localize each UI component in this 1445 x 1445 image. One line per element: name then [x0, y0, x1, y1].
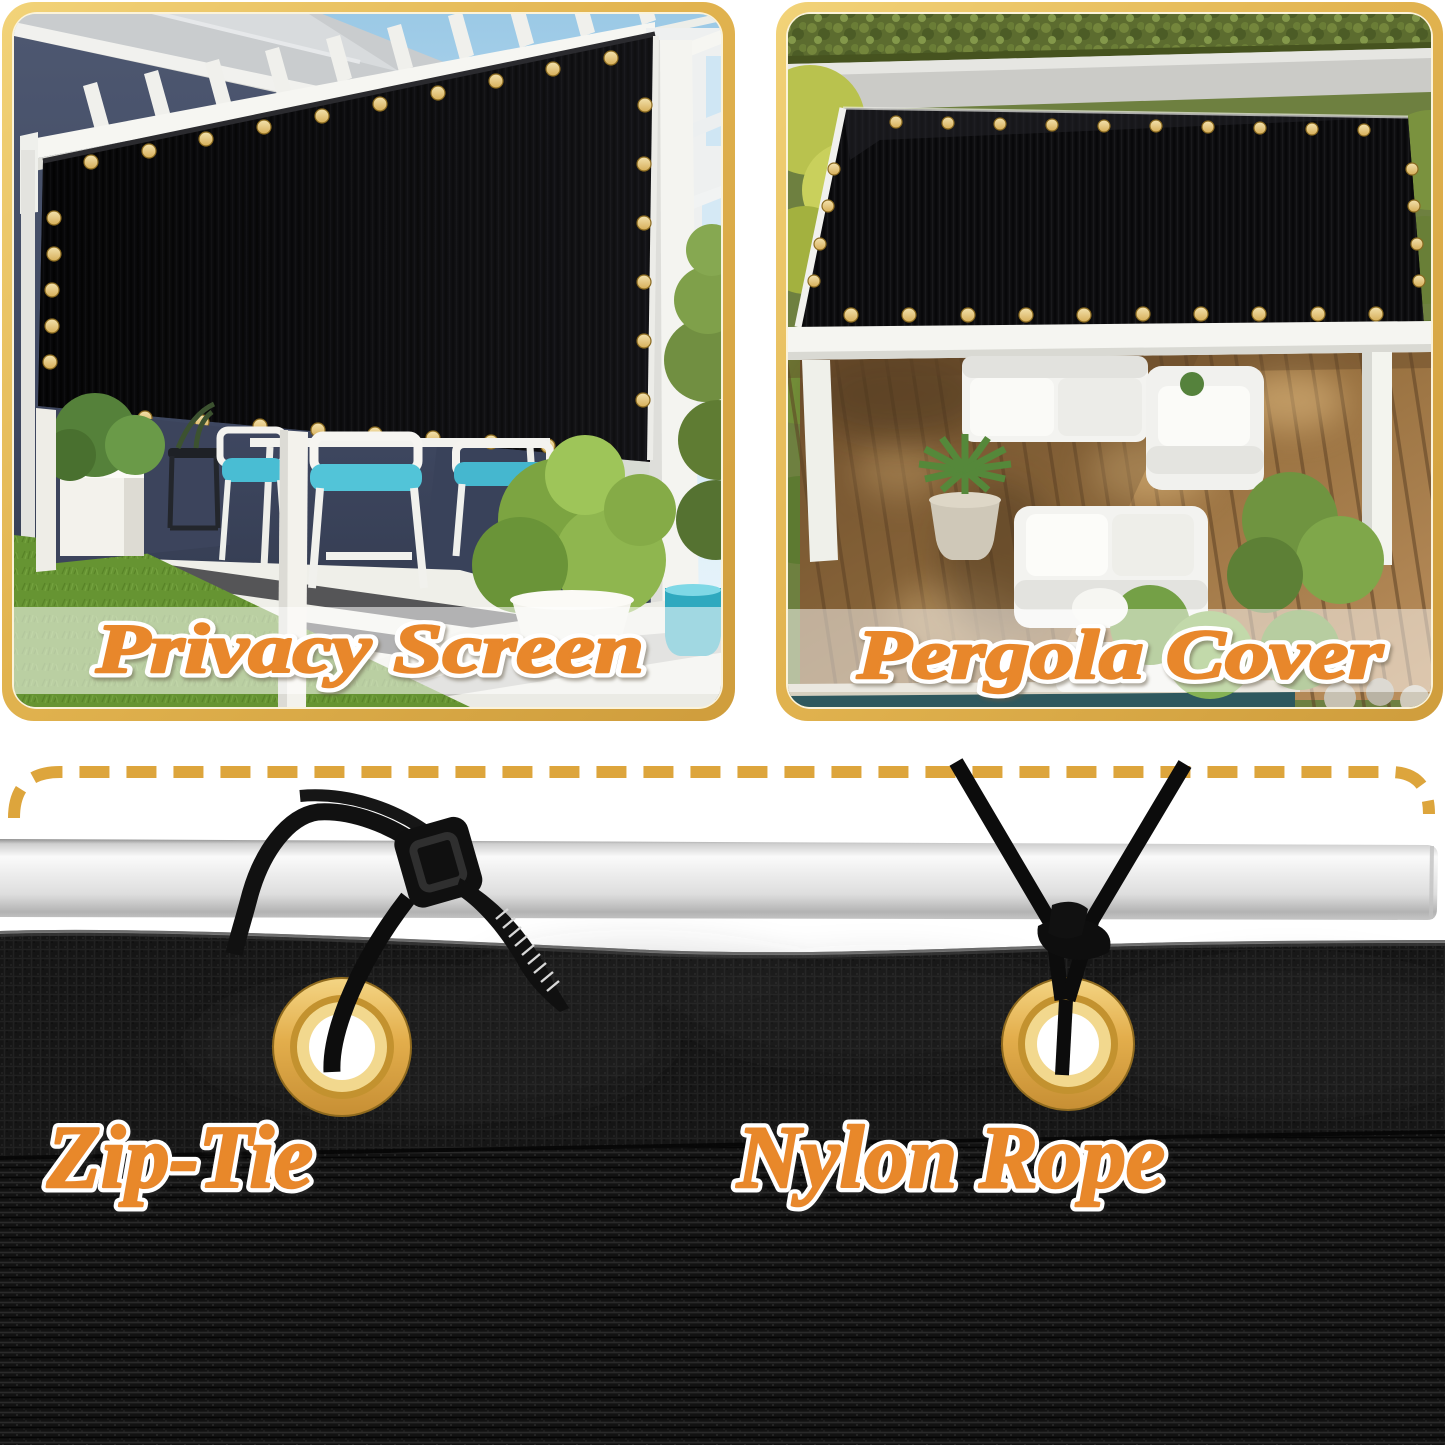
- svg-text:Zip-Tie: Zip-Tie: [46, 1109, 313, 1207]
- svg-text:Pergola Cover: Pergola Cover: [856, 617, 1384, 694]
- svg-text:Nylon Rope: Nylon Rope: [736, 1109, 1165, 1207]
- svg-text:Privacy Screen: Privacy Screen: [95, 611, 644, 688]
